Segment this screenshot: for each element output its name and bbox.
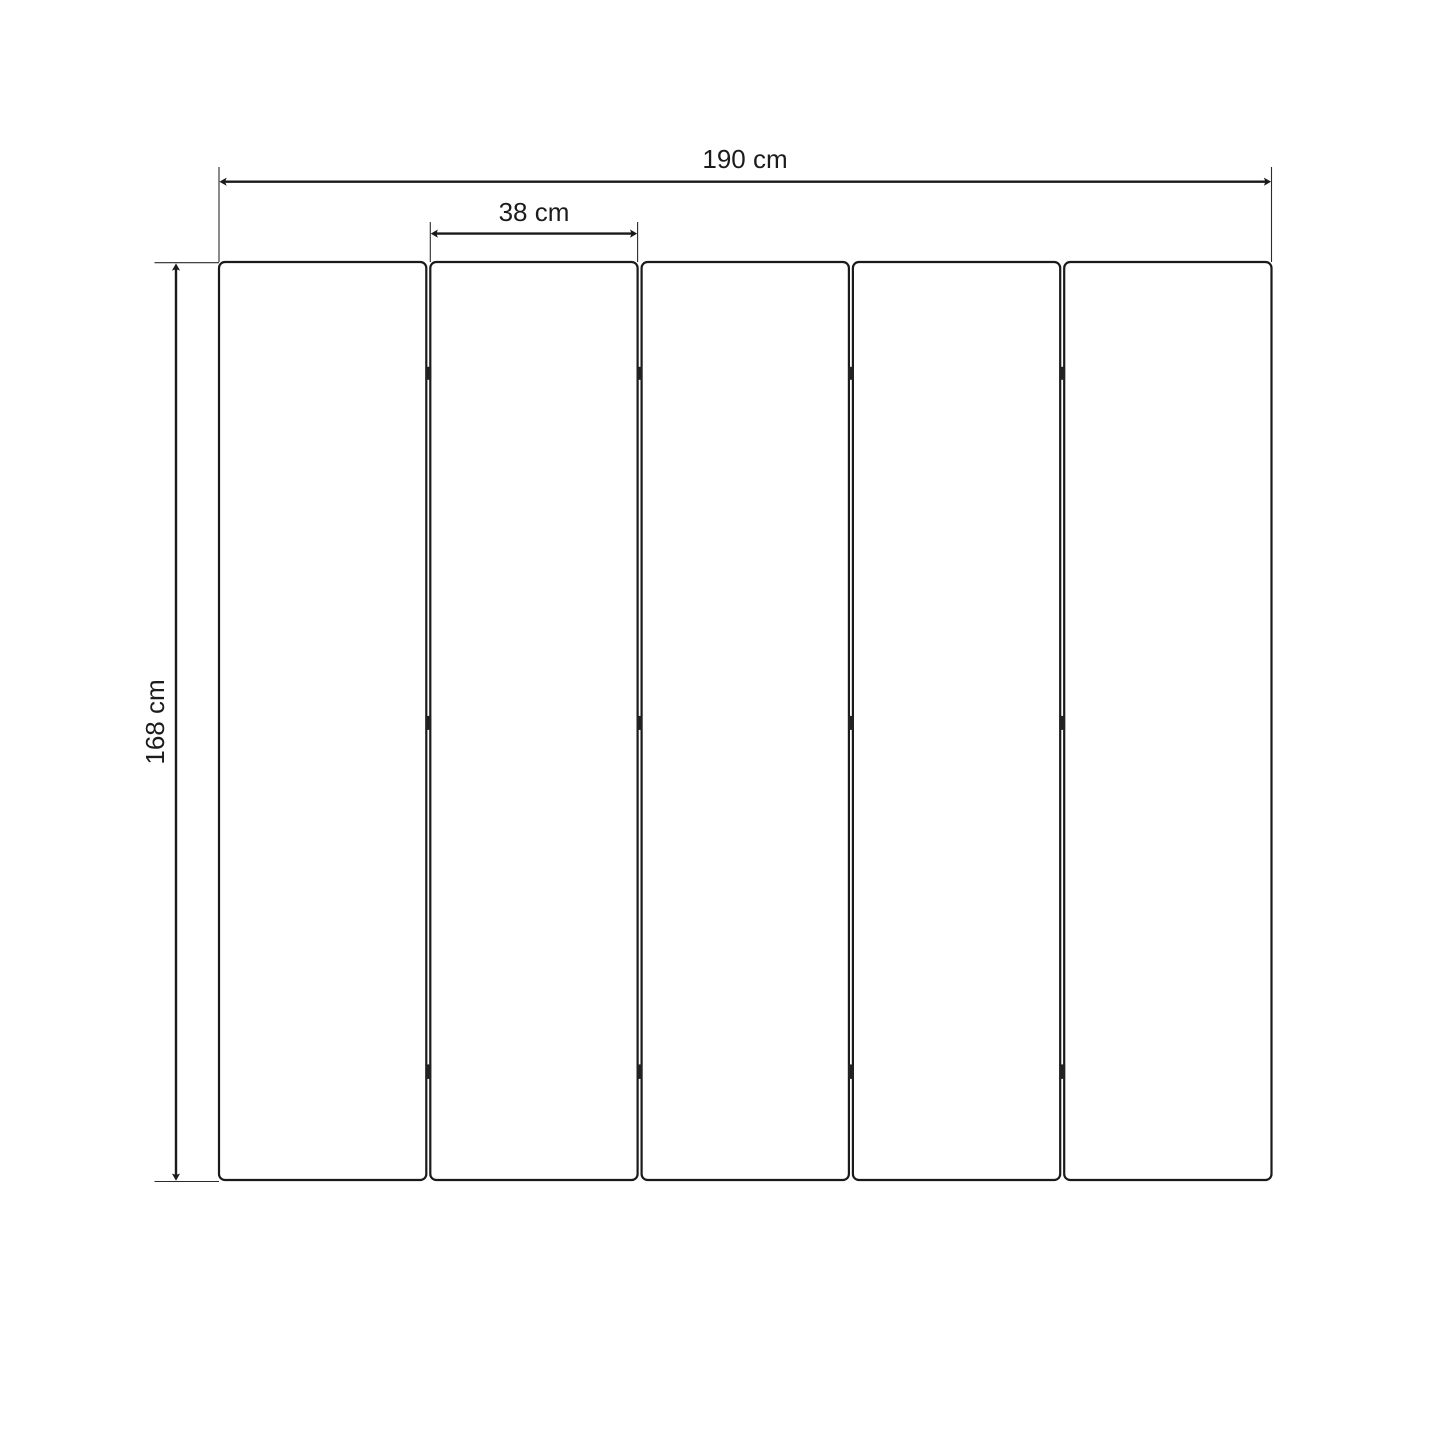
- svg-text:38 cm: 38 cm: [499, 197, 570, 227]
- svg-text:168 cm: 168 cm: [140, 679, 170, 764]
- svg-text:190 cm: 190 cm: [702, 144, 787, 174]
